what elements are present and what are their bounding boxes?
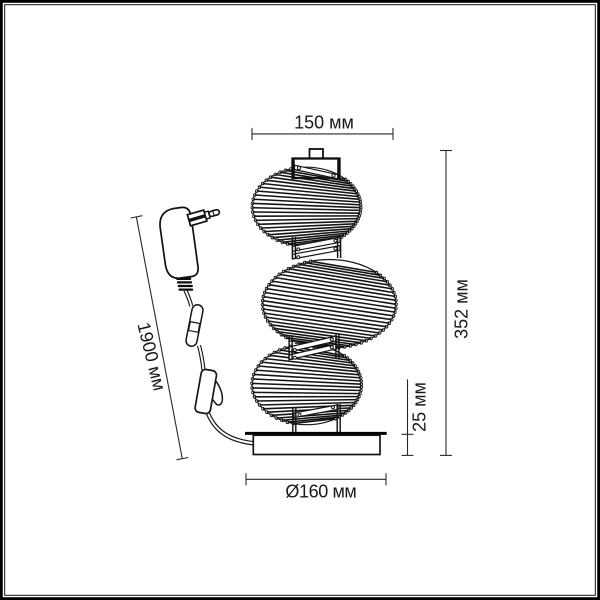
svg-text:1900 мм: 1900 мм	[133, 320, 169, 393]
svg-text:352 мм: 352 мм	[452, 279, 472, 339]
svg-text:150 мм: 150 мм	[294, 113, 354, 133]
svg-text:25 мм: 25 мм	[410, 382, 430, 432]
svg-text:Ø160 мм: Ø160 мм	[285, 482, 356, 502]
